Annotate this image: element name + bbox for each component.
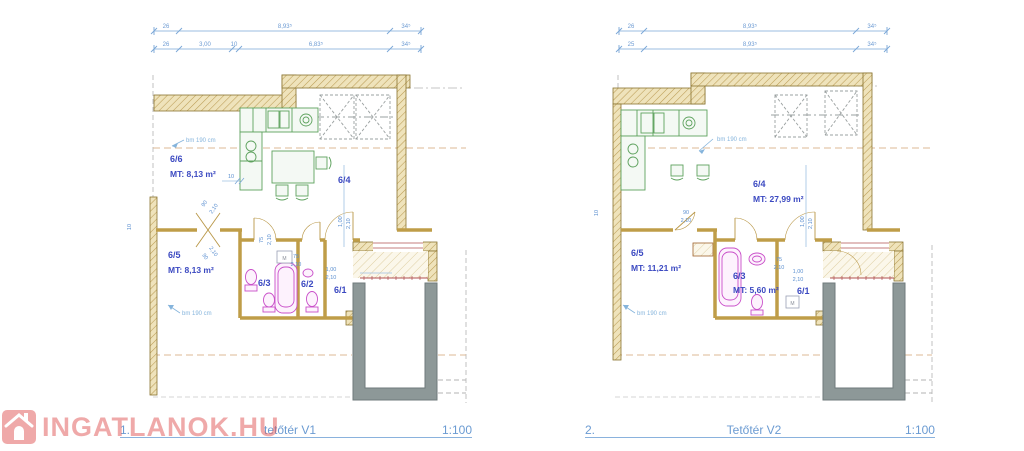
door-dim: 2,10 — [681, 218, 692, 224]
dim-label: 8,93⁵ — [743, 41, 758, 48]
dim-label: 34⁵ — [401, 41, 411, 48]
dim-label: 34⁵ — [867, 41, 877, 48]
bm-label: bm 190 cm — [637, 311, 667, 317]
room-label: 6/4 — [753, 179, 766, 189]
dim-label: 6,83⁵ — [309, 41, 324, 48]
door-dim: 1,00 — [800, 216, 806, 227]
side-dim: 10 — [594, 210, 600, 216]
kitchen-furniture — [621, 110, 709, 190]
room-label: 6/1 — [334, 285, 347, 295]
room-label: 6/2 — [301, 279, 314, 289]
balcony — [823, 283, 905, 400]
room-area: MT: 5,60 m² — [733, 285, 779, 295]
door-dim: 2,10 — [267, 234, 273, 245]
room-area: MT: 27,99 m² — [753, 194, 804, 204]
room-label: 6/6 — [170, 154, 183, 164]
watermark-logo: INGATLANOK.HU — [2, 410, 279, 444]
dimension-chain-top — [616, 27, 890, 53]
room-label: 6/3 — [258, 278, 271, 288]
door-dim: 1,00 — [793, 269, 804, 275]
door-dim: 90 — [683, 210, 689, 216]
room-label: 6/1 — [797, 286, 810, 296]
balcony — [353, 283, 437, 400]
dimension-chain-top — [151, 27, 424, 53]
room-label: 6/3 — [733, 271, 746, 281]
dim-label: 34⁵ — [867, 23, 877, 30]
dim-label: 25 — [628, 42, 635, 48]
door-dim: 75 — [259, 237, 265, 243]
roof-window — [771, 91, 861, 137]
door-dim: 75 — [293, 254, 299, 260]
door-dim: 1,00 — [338, 216, 344, 227]
washing-machine-label: M — [790, 301, 794, 307]
room-label: 6/4 — [338, 175, 351, 185]
plan2-scale: 1:100 — [895, 423, 935, 437]
bm-label: bm 190 cm — [182, 311, 212, 317]
door-dim: 2,10 — [207, 246, 218, 258]
bm-label: bm 190 cm — [186, 138, 216, 144]
kitchen-dim: 10 — [228, 174, 234, 180]
floorplan-v2-drawing: 26 8,93⁵ 34⁵ 25 8,93⁵ 34⁵ — [585, 15, 955, 420]
plan2-title: Tetőtér V2 — [727, 423, 782, 437]
bath-fixtures — [719, 248, 765, 315]
door-dim: 90 — [200, 253, 208, 261]
door-dim: 75 — [776, 257, 782, 263]
room-label: 6/5 — [631, 248, 644, 258]
washing-machine-label: M — [282, 256, 286, 262]
door-dim: 2,10 — [326, 275, 337, 281]
door-dim: 2,10 — [209, 203, 220, 215]
dim-label: 26 — [163, 42, 170, 48]
door-dim: 2,10 — [774, 265, 785, 271]
floorplan-v1-drawing: 26 8,93⁵ 34⁵ 26 3,00 10 6,83⁵ 34⁵ — [120, 15, 490, 420]
room-area: MT: 11,21 m² — [631, 263, 681, 273]
kitchen-furniture — [240, 108, 331, 200]
door-dim: 2,10 — [808, 218, 814, 229]
dim-label: 8,93⁵ — [278, 23, 293, 30]
washing-machine: M — [786, 296, 799, 308]
side-dim: 10 — [127, 224, 133, 230]
dim-label: 26 — [163, 24, 170, 30]
dim-label: 8,93⁵ — [743, 23, 758, 30]
door-dim: 1,00 — [326, 267, 337, 273]
roof-window — [316, 95, 394, 139]
dim-label: 26 — [628, 24, 635, 30]
door-dim: 2,10 — [346, 218, 352, 229]
door-dim: 2,10 — [793, 277, 804, 283]
room-label: 6/5 — [168, 250, 181, 260]
plan2-title-row: 2. Tetőtér V2 1:100 — [585, 421, 935, 438]
door-dim: 2,10 — [291, 262, 302, 268]
room-area: MT: 8,13 m² — [168, 265, 214, 275]
room-area: MT: 8,13 m² — [170, 169, 216, 179]
dim-label: 3,00 — [199, 42, 211, 48]
dimension-labels: 26 8,93⁵ 34⁵ 25 8,93⁵ 34⁵ — [628, 23, 877, 48]
plan1-scale: 1:100 — [432, 423, 472, 437]
dim-label: 34⁵ — [401, 23, 411, 30]
door-dim: 90 — [201, 200, 209, 208]
doors — [196, 212, 353, 247]
watermark-text: INGATLANOK.HU — [42, 412, 279, 443]
dim-label: 10 — [231, 42, 238, 48]
house-icon — [2, 410, 36, 444]
bm-label: bm 190 cm — [717, 137, 747, 143]
dimension-labels: 26 8,93⁵ 34⁵ 26 3,00 10 6,83⁵ 34⁵ — [163, 23, 411, 48]
plan2-number: 2. — [585, 423, 613, 437]
